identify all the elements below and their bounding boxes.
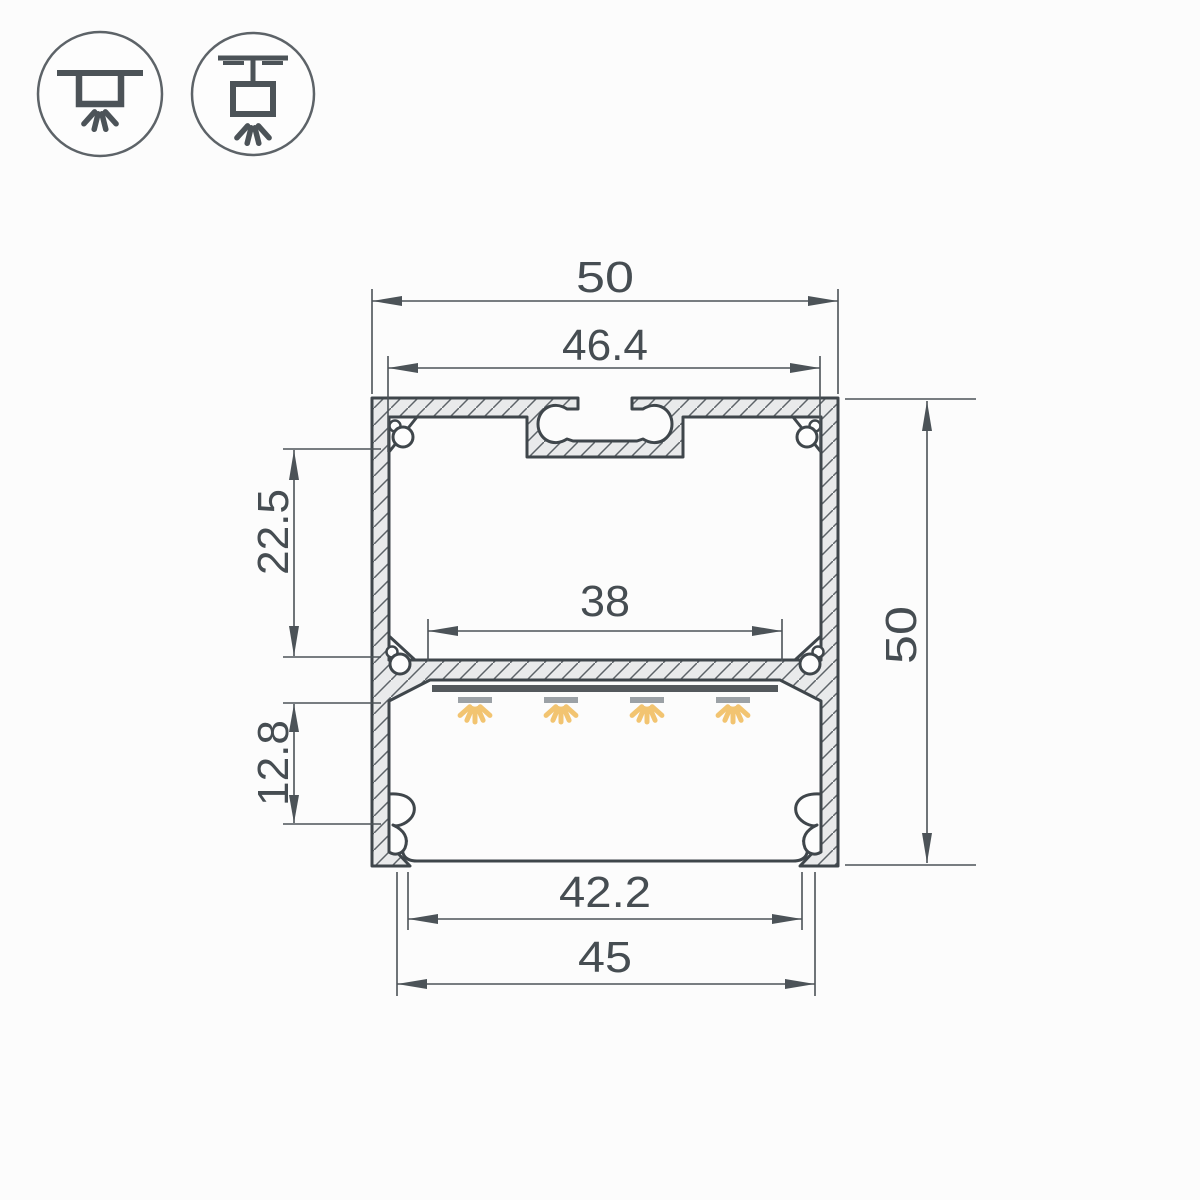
led-emitter [630, 697, 664, 703]
surface-mount-icon [38, 32, 162, 156]
screw-port [390, 654, 410, 674]
arrowhead [289, 450, 299, 480]
arrowhead [408, 914, 438, 924]
icon-circle [192, 33, 314, 155]
light-rays [546, 707, 576, 722]
light-rays [632, 707, 662, 722]
dimension-label: 45 [578, 933, 632, 982]
led-emitter [716, 697, 750, 703]
arrowhead [922, 833, 932, 863]
arrowhead [428, 626, 458, 636]
suspended-mount-icon [192, 33, 314, 155]
diffuser-hook [389, 794, 414, 854]
arrowhead [397, 979, 427, 989]
dimension-label: 46.4 [562, 321, 648, 370]
dimension-label: 38 [580, 577, 630, 626]
profile-drawing: 50 46.4 38 50 22.5 12.8 42.2 [0, 0, 1200, 1200]
dimension-label: 50 [576, 253, 634, 302]
diffuser-hook [796, 794, 821, 854]
dimension-upper-chamber-height: 22.5 [249, 449, 381, 657]
light-rays [718, 707, 748, 722]
dimension-label: 42.2 [559, 868, 651, 917]
dimension-top-opening-width: 46.4 [388, 321, 820, 452]
icon-circle [38, 32, 162, 156]
arrowhead [785, 979, 815, 989]
arrowhead [772, 914, 802, 924]
arrowhead [790, 363, 820, 373]
dimension-diffuser-width: 42.2 [408, 868, 802, 930]
arrowhead [752, 626, 782, 636]
led-pcb [432, 685, 778, 692]
arrowhead [388, 363, 418, 373]
arrowhead [808, 296, 838, 306]
dimension-led-shelf-width: 38 [428, 577, 782, 661]
screw-port [800, 654, 820, 674]
dimension-outer-height: 50 [845, 399, 976, 865]
arrowhead [372, 296, 402, 306]
arrowhead [289, 626, 299, 656]
light-rays [460, 707, 490, 722]
led-strip [432, 685, 778, 722]
led-emitter [544, 697, 578, 703]
screw-port [393, 427, 413, 447]
screw-port [797, 427, 817, 447]
arrowhead [922, 401, 932, 431]
dimension-label: 50 [877, 606, 926, 664]
dimension-label: 12.8 [249, 720, 298, 806]
dimension-lower-chamber-height: 12.8 [249, 703, 381, 824]
dimension-label: 22.5 [249, 489, 298, 575]
drawing-canvas: 50 46.4 38 50 22.5 12.8 42.2 [0, 0, 1200, 1200]
diffuser-lens [403, 840, 808, 861]
led-emitter [458, 697, 492, 703]
